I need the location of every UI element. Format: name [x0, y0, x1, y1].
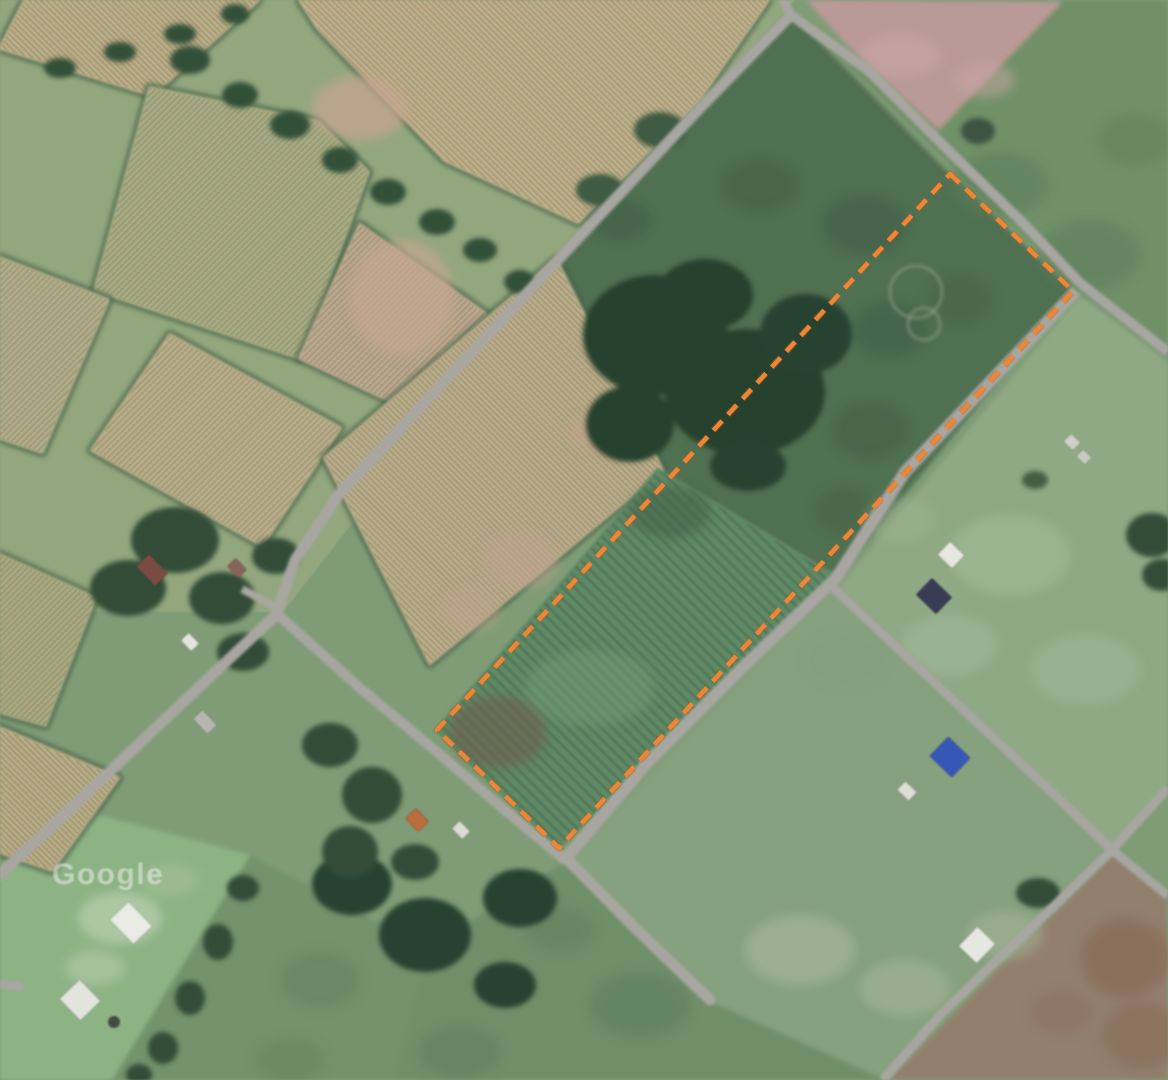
- google-watermark: Google: [52, 858, 164, 891]
- map-viewport[interactable]: Google: [0, 0, 1168, 1080]
- parcel-boundary: [437, 174, 1073, 848]
- map-overlay-canvas: Google: [0, 0, 1168, 1080]
- parcel-boundary-shadow: [437, 174, 1073, 848]
